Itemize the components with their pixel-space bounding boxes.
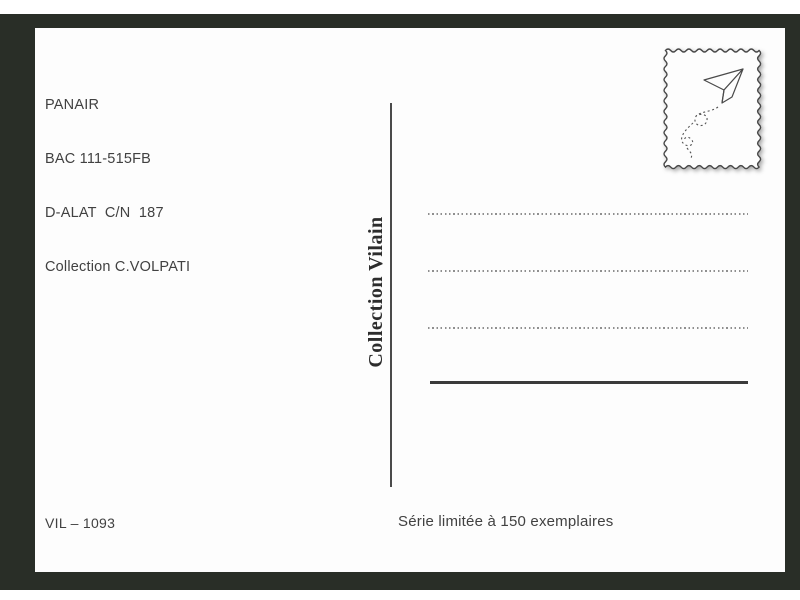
collection-vilain-label: Collection Vilain [364, 207, 388, 377]
address-solid-line [430, 381, 748, 384]
caption-airline: PANAIR [45, 96, 190, 114]
address-dotted-line-2 [428, 270, 748, 272]
caption-collection: Collection C.VOLPATI [45, 258, 190, 276]
stamp-wavy-border [664, 49, 761, 169]
stamp-box [660, 45, 765, 172]
limited-edition-note: Série limitée à 150 exemplaires [398, 513, 613, 530]
caption-registration: D-ALAT C/N 187 [45, 204, 190, 222]
address-dotted-line-1 [428, 213, 748, 215]
caption-aircraft: BAC 111-515FB [45, 150, 190, 168]
vertical-divider-line [390, 103, 392, 487]
caption-block: PANAIR BAC 111-515FB D-ALAT C/N 187 Coll… [45, 60, 190, 312]
postcard-back: PANAIR BAC 111-515FB D-ALAT C/N 187 Coll… [35, 28, 785, 572]
address-dotted-line-3 [428, 327, 748, 329]
reference-number: VIL – 1093 [45, 515, 115, 531]
postcard-scan: PANAIR BAC 111-515FB D-ALAT C/N 187 Coll… [0, 0, 800, 600]
